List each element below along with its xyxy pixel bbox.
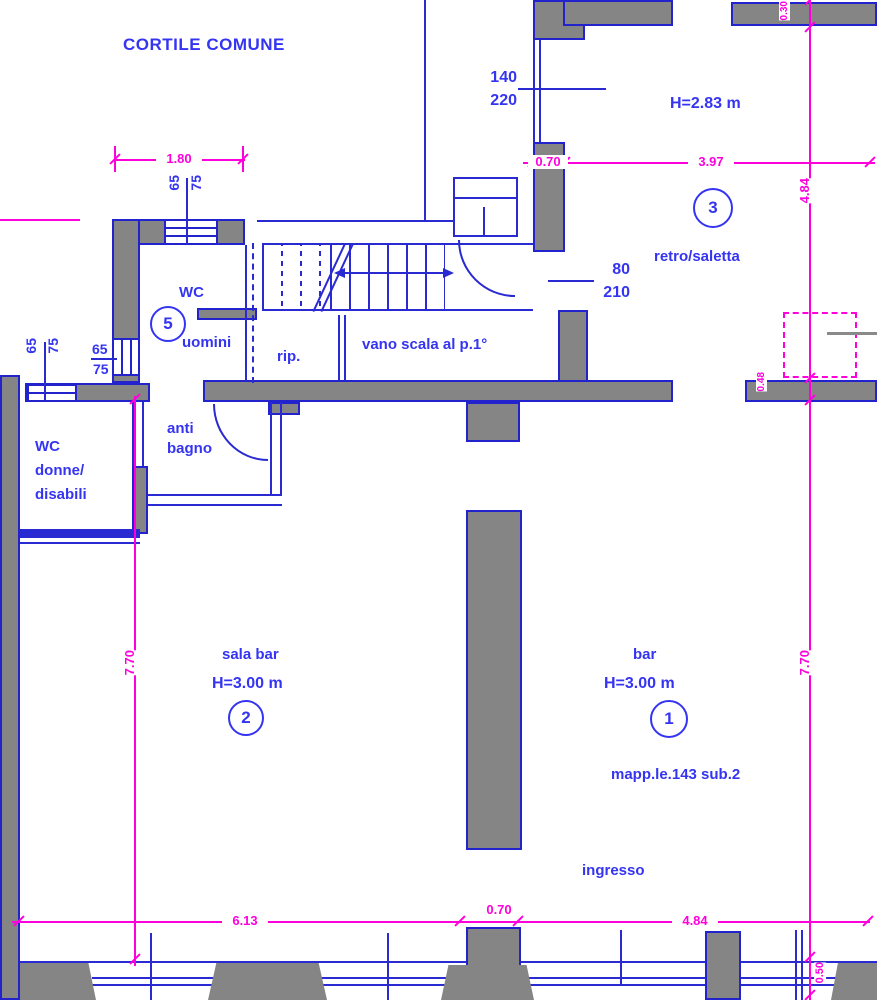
dim-6-13: 6.13	[222, 914, 268, 928]
wall-pier	[466, 402, 520, 442]
wc-donne-label-3: disabili	[35, 486, 87, 505]
leader-line	[186, 178, 188, 244]
leader-line	[548, 280, 594, 282]
wc-donne-label-1: WC	[35, 438, 60, 457]
window	[164, 219, 218, 245]
wall-segment	[563, 0, 673, 26]
outer-wall-left	[0, 375, 20, 1000]
window-size-65: 65	[24, 338, 39, 354]
stair-top-line	[257, 220, 459, 222]
stair-arrow-icon	[443, 268, 454, 278]
stair-arrow-icon	[334, 268, 345, 278]
wall-line	[270, 402, 272, 495]
leader-line	[44, 342, 46, 400]
wall-pier	[20, 963, 96, 1000]
courtyard-label: CORTILE COMUNE	[123, 34, 285, 55]
window	[112, 338, 140, 376]
dim-4-84-bottom: 4.84	[672, 914, 718, 928]
door-leaf-line	[455, 197, 516, 199]
dim-1-80: 1.80	[156, 152, 202, 166]
sala-bar-label: sala bar	[222, 646, 279, 665]
dim-0-50: 0.50	[814, 962, 826, 983]
floor-plan: CORTILE COMUNE	[0, 0, 877, 1000]
wall-line	[338, 315, 340, 381]
extension-line	[795, 930, 797, 1000]
fraction-line	[91, 358, 117, 360]
dashed-annotation-box	[783, 312, 857, 378]
wall-line	[344, 315, 346, 381]
rip-label: rip.	[277, 348, 300, 367]
bar-label: bar	[633, 646, 656, 665]
wall-line	[20, 542, 140, 544]
bottom-wall-face-line	[20, 961, 877, 963]
wall-corner	[831, 963, 877, 1000]
door-leaf	[453, 177, 518, 237]
retro-label: retro/saletta	[654, 248, 740, 267]
window-size-65: 65	[167, 175, 182, 191]
wall-thick-line	[20, 529, 140, 538]
window-size-75: 75	[189, 175, 204, 191]
dim-0-30: 0.30	[779, 1, 790, 20]
wall-segment	[203, 380, 673, 402]
wall-stub	[197, 308, 257, 320]
door-opening-line	[533, 40, 535, 142]
room-number-2: 2	[228, 700, 264, 736]
window-size-75: 75	[46, 338, 61, 354]
wall-segment	[558, 310, 588, 382]
section-line	[252, 243, 254, 383]
wall-pier	[466, 927, 521, 967]
dim-0-48: 0.48	[756, 372, 767, 391]
door-width-80: 80	[594, 260, 630, 280]
anti-bagno-label-2: bagno	[167, 440, 212, 459]
wall-pier	[208, 963, 327, 1000]
wall-pier	[705, 931, 741, 1000]
door-leaf-line	[483, 207, 485, 235]
stair-edge	[262, 243, 264, 311]
wall-line	[142, 402, 144, 470]
wall-pier	[441, 965, 534, 1000]
room-number-5: 5	[150, 306, 186, 342]
room-number-1: 1	[650, 700, 688, 738]
boundary-line	[0, 219, 80, 221]
door-opening-line	[539, 40, 541, 142]
door-swing-arc	[458, 240, 515, 297]
extension-line	[150, 933, 152, 1000]
mappale-label: mapp.le.143 sub.2	[611, 766, 740, 785]
extension-line	[801, 930, 803, 1000]
wc-label: WC	[179, 284, 204, 303]
room-number-3: 3	[693, 188, 733, 228]
stair-direction-line	[343, 272, 451, 274]
sala-bar-height-label: H=3.00 m	[212, 674, 283, 694]
bar-counter-wall	[466, 510, 522, 850]
leader-line	[518, 88, 606, 90]
uomini-label: uomini	[182, 334, 231, 353]
dim-0-70-bottom: 0.70	[478, 903, 520, 917]
wall-stub	[268, 402, 300, 415]
stair-edge	[262, 309, 533, 311]
dim-7-70-right: 7.70	[798, 650, 812, 675]
reference-line	[827, 332, 877, 335]
wall-segment	[731, 2, 877, 26]
dim-3-97: 3.97	[688, 155, 734, 169]
vano-scala-label: vano scala al p.1°	[362, 336, 487, 355]
dimension-line	[12, 921, 870, 923]
anti-bagno-label-1: anti	[167, 420, 194, 439]
ingresso-label: ingresso	[582, 862, 645, 881]
door-line	[620, 930, 622, 985]
retro-height-label: H=2.83 m	[670, 94, 741, 114]
door-swing-arc	[213, 404, 268, 461]
wall-line	[148, 494, 282, 496]
extension-line	[387, 933, 389, 1000]
stairs-dashed-treads	[262, 243, 330, 311]
door-height-210: 210	[591, 283, 630, 303]
dim-0-70: 0.70	[528, 155, 568, 169]
bar-height-label: H=3.00 m	[604, 674, 675, 694]
dimension-line	[134, 396, 136, 966]
window	[27, 383, 77, 402]
wall-line	[245, 245, 247, 381]
boundary-line-vertical	[424, 0, 426, 222]
dim-4-84-right: 4.84	[798, 178, 812, 203]
dim-7-70-left: 7.70	[123, 650, 137, 675]
door-width-140: 140	[477, 68, 517, 88]
wall-line	[280, 402, 282, 495]
dimension-line	[809, 0, 811, 1000]
wc-donne-label-2: donne/	[35, 462, 84, 481]
window-size-75: 75	[93, 361, 109, 379]
door-height-220: 220	[477, 91, 517, 111]
wall-line	[148, 504, 282, 506]
window-size-65: 65	[92, 341, 108, 359]
